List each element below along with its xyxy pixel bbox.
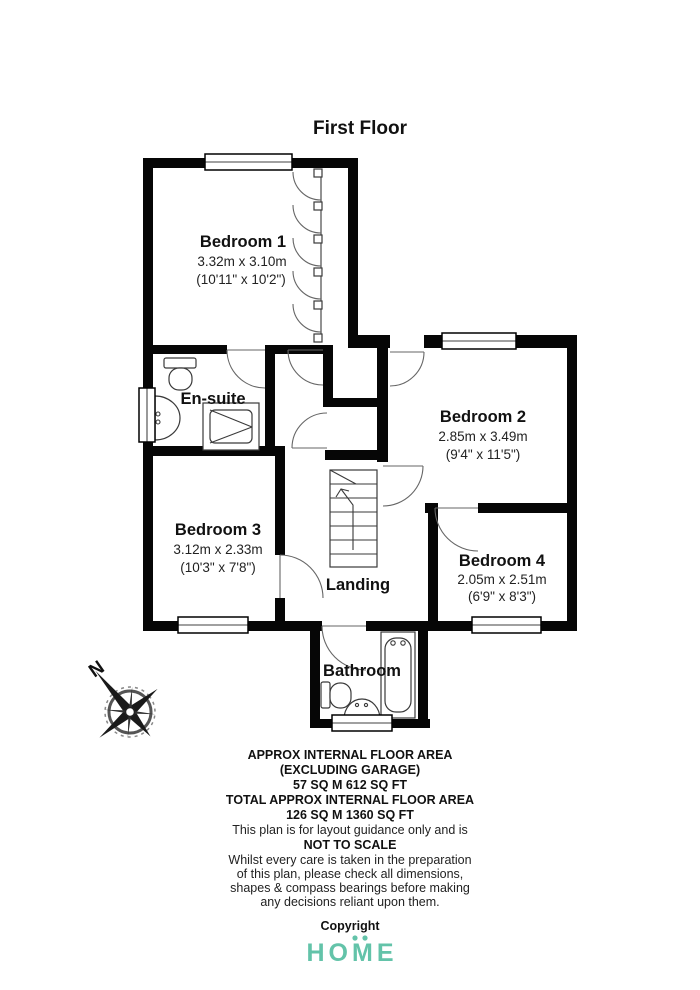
bedroom2-door [390,352,424,386]
shower-icon [203,403,259,450]
footer-line-10: shapes & compass bearings before making [230,881,470,895]
footer-line-11: any decisions reliant upon them. [260,895,439,909]
footer-line-3: 57 SQ M 612 SQ FT [293,778,407,792]
footer-line-6: This plan is for layout guidance only an… [232,823,468,837]
footer-line-2: (EXCLUDING GARAGE) [280,763,420,777]
bedroom3-door [280,555,323,598]
bedroom1-label: Bedroom 1 [200,233,286,251]
home-logo-text: HOME [307,939,398,967]
wardrobe-icon [293,169,322,342]
bedroom3-label: Bedroom 3 [175,521,261,539]
staircase [330,470,377,567]
compass-rose-icon: N [65,647,178,762]
ensuite-door [227,350,265,388]
bedroom3-metric: 3.12m x 2.33m [173,542,262,557]
footer-line-1: APPROX INTERNAL FLOOR AREA [248,748,453,762]
footer-copyright: Copyright [320,919,380,933]
bedroom3-window [178,617,248,633]
bedroom4-imperial: (6'9" x 8'3") [468,589,536,604]
home-logo: HOME [307,935,398,967]
ensuite-window [139,388,155,442]
home-logo-dot-left [352,935,357,940]
home-logo-dot-right [362,935,367,940]
bedroom4-door [435,508,478,551]
footer-line-4: TOTAL APPROX INTERNAL FLOOR AREA [226,793,474,807]
footer-text: APPROX INTERNAL FLOOR AREA (EXCLUDING GA… [226,748,474,933]
bedroom1-door [288,350,323,385]
page-title: First Floor [313,118,408,139]
bedroom2-metric: 2.85m x 3.49m [438,429,527,444]
footer-line-9: of this plan, please check all dimension… [237,867,464,881]
bedroom1-metric: 3.32m x 3.10m [197,254,286,269]
bedroom4-window [472,617,541,633]
bedroom4-metric: 2.05m x 2.51m [457,572,546,587]
bedroom1-window [205,154,292,170]
landing-label: Landing [326,576,390,594]
bedroom4-label: Bedroom 4 [459,552,546,570]
cupboard-door [292,413,327,448]
ensuite-label: En-suite [180,390,245,408]
ensuite-basin-icon [155,396,180,440]
floorplan-page: First Floor [0,0,700,990]
bedroom2-imperial: (9'4" x 11'5") [446,447,521,462]
bathroom-window [332,715,392,731]
bathroom-label: Bathroom [323,662,401,680]
footer-line-7: NOT TO SCALE [304,838,397,852]
compass-north-label: N [85,657,108,682]
bedroom2-label: Bedroom 2 [440,408,526,426]
bedroom1-imperial: (10'11" x 10'2") [196,272,286,287]
bedroom3-imperial: (10'3" x 7'8") [180,560,256,575]
bedroom2-inner-door [383,466,423,506]
bedroom2-window [442,333,516,349]
footer-line-5: 126 SQ M 1360 SQ FT [286,808,414,822]
bathroom-toilet-icon [321,682,351,708]
ensuite-toilet-icon [164,358,196,390]
footer-line-8: Whilst every care is taken in the prepar… [228,853,471,867]
